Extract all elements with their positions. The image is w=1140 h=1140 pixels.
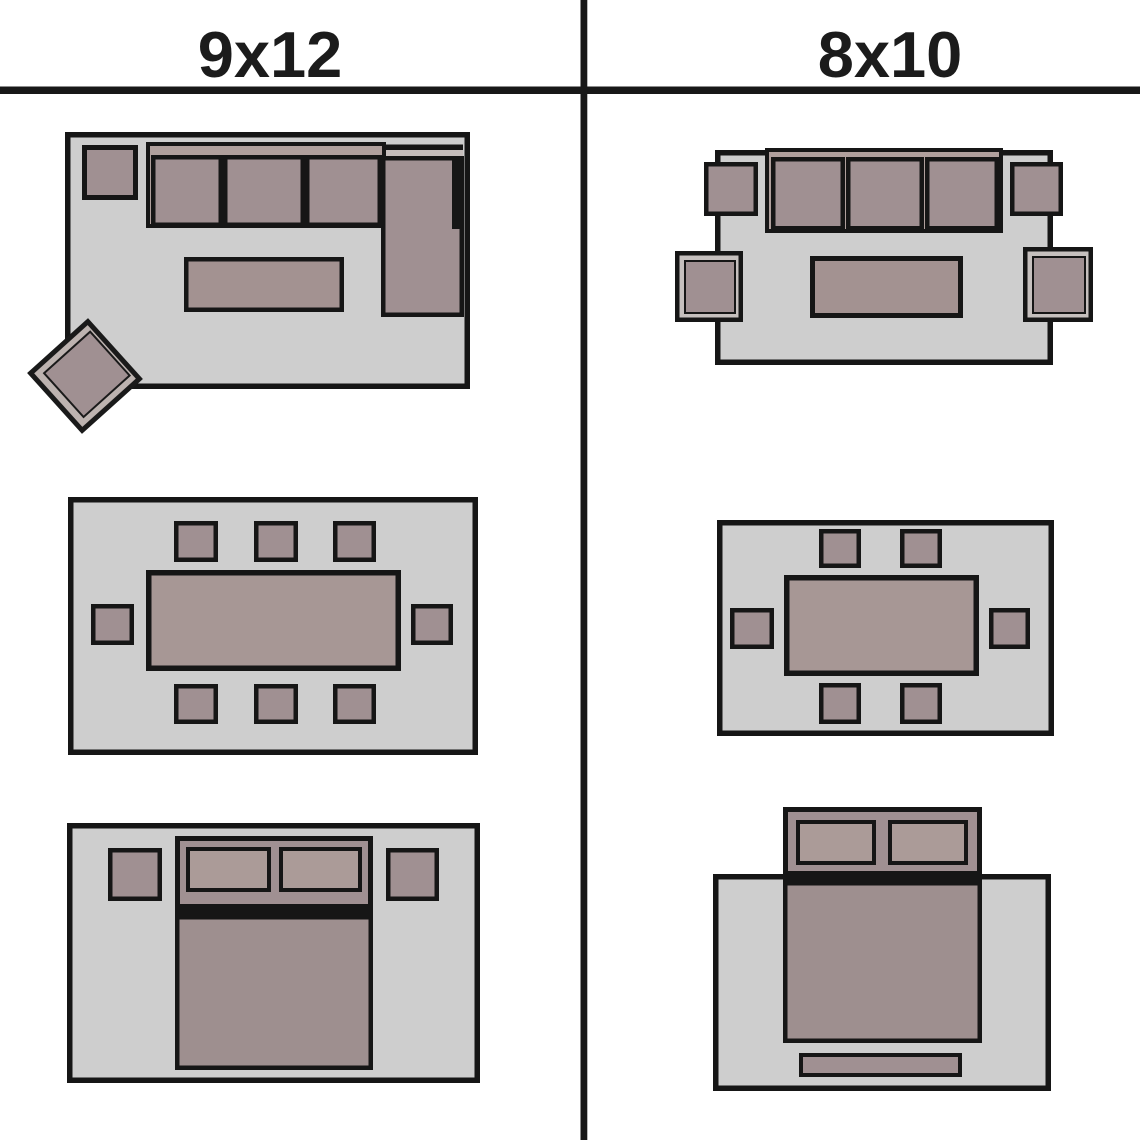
svg-text:8x10: 8x10 (818, 18, 963, 91)
svg-text:9x12: 9x12 (198, 18, 343, 91)
